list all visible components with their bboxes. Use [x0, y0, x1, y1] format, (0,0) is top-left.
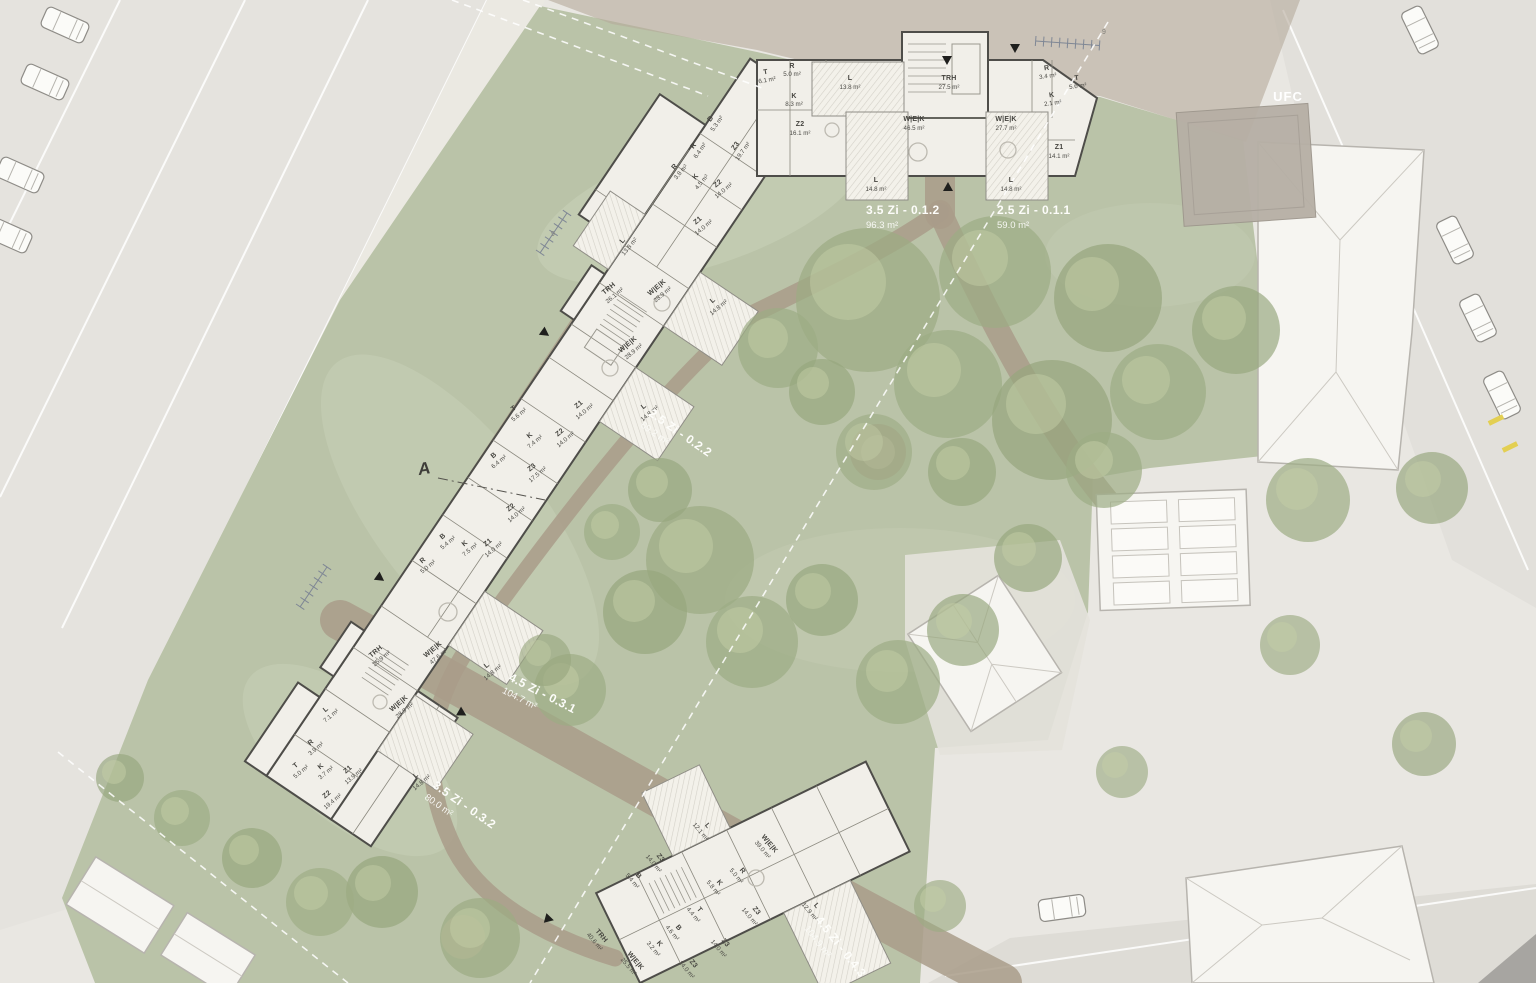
svg-text:46.5 m²: 46.5 m² — [904, 125, 925, 132]
ufc-canopy — [1176, 103, 1316, 226]
svg-text:K: K — [1049, 92, 1055, 100]
svg-text:R: R — [1044, 65, 1050, 73]
svg-text:3.5 Zi - 0.1.2: 3.5 Zi - 0.1.2 — [866, 203, 940, 217]
ufc-canopy-label: UFC — [1273, 89, 1303, 104]
svg-text:W|E|K: W|E|K — [903, 116, 924, 123]
bike-count-west: 9 — [551, 231, 555, 238]
site-plan: T6.1 m² R5.0 m² L13.8 m² TRH27.5 m² R3.4… — [0, 0, 1536, 983]
bike-count-north: 9 — [1102, 29, 1106, 36]
svg-text:27.7 m²: 27.7 m² — [996, 125, 1017, 132]
svg-text:14.8 m²: 14.8 m² — [866, 186, 887, 193]
svg-text:L: L — [1009, 177, 1014, 184]
svg-text:16.1 m²: 16.1 m² — [790, 130, 811, 137]
svg-text:96.3 m²: 96.3 m² — [866, 220, 898, 231]
svg-text:W|E|K: W|E|K — [995, 116, 1016, 123]
svg-text:14.1 m²: 14.1 m² — [1049, 153, 1070, 160]
svg-text:2.5 Zi - 0.1.1: 2.5 Zi - 0.1.1 — [997, 203, 1071, 217]
svg-text:K: K — [791, 93, 796, 100]
site-plan-drawing: T6.1 m² R5.0 m² L13.8 m² TRH27.5 m² R3.4… — [0, 0, 1536, 983]
svg-text:27.5 m²: 27.5 m² — [939, 84, 960, 91]
garage-block — [1096, 489, 1250, 610]
svg-text:59.0 m²: 59.0 m² — [997, 220, 1029, 231]
svg-text:Z2: Z2 — [796, 121, 805, 128]
svg-text:R: R — [789, 63, 794, 70]
svg-text:8.3 m²: 8.3 m² — [785, 101, 803, 108]
svg-text:L: L — [848, 75, 853, 82]
svg-text:5.0 m²: 5.0 m² — [783, 71, 801, 78]
svg-text:TRH: TRH — [942, 75, 957, 82]
svg-text:L: L — [874, 177, 879, 184]
svg-text:14.8 m²: 14.8 m² — [1001, 186, 1022, 193]
svg-text:13.8 m²: 13.8 m² — [840, 84, 861, 91]
svg-text:Z1: Z1 — [1055, 144, 1064, 151]
